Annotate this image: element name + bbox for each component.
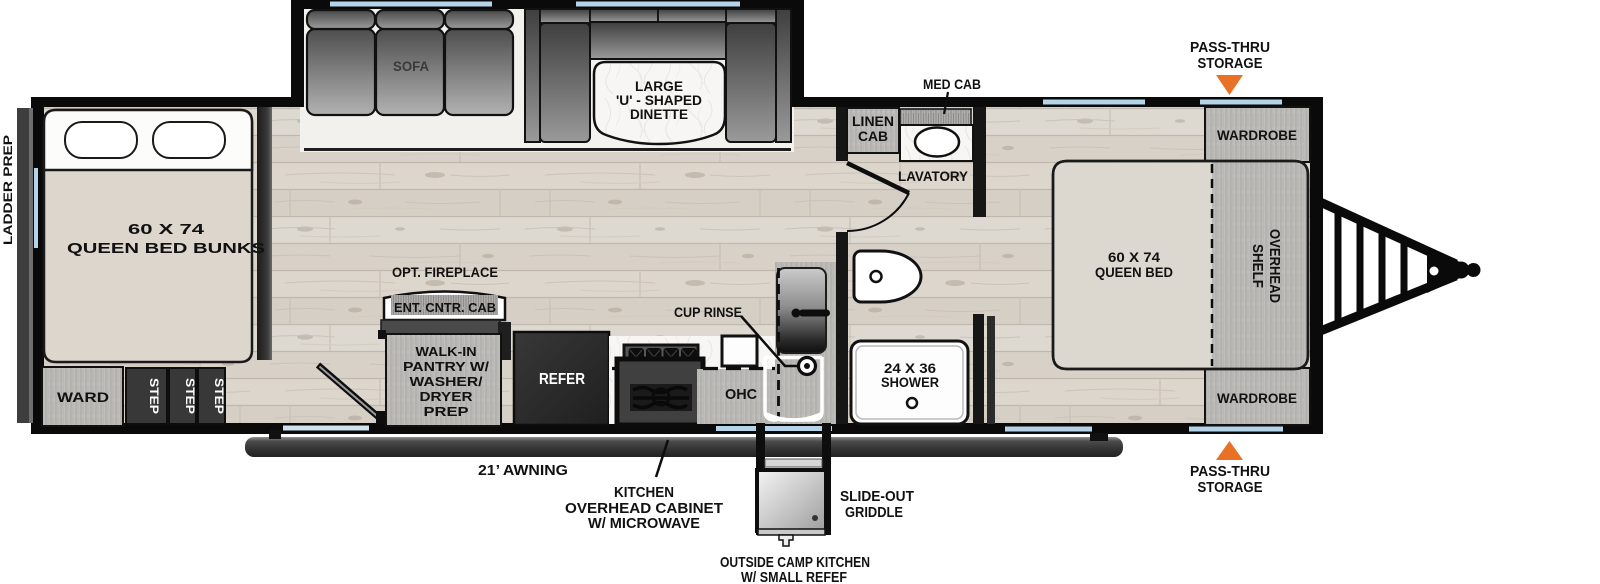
svg-text:60 X 74: 60 X 74 — [128, 221, 205, 238]
svg-text:PASS-THRU: PASS-THRU — [1190, 464, 1270, 480]
svg-text:W/ MICROWAVE: W/ MICROWAVE — [588, 516, 700, 532]
svg-text:OHC: OHC — [725, 386, 757, 403]
svg-text:ENT. CNTR. CAB: ENT. CNTR. CAB — [394, 301, 496, 315]
svg-text:PASS-THRU: PASS-THRU — [1190, 40, 1270, 56]
svg-text:GRIDDLE: GRIDDLE — [845, 504, 903, 521]
svg-text:21’ AWNING: 21’ AWNING — [478, 463, 568, 479]
svg-text:DRYER: DRYER — [420, 389, 474, 404]
svg-text:SHELF: SHELF — [1249, 244, 1266, 288]
svg-text:QUEEN BED: QUEEN BED — [1095, 265, 1173, 280]
svg-text:60 X 74: 60 X 74 — [1108, 250, 1161, 265]
svg-text:SLIDE-OUT: SLIDE-OUT — [840, 488, 914, 505]
svg-text:SOFA: SOFA — [393, 59, 429, 74]
svg-text:DINETTE: DINETTE — [630, 107, 688, 122]
svg-text:LAVATORY: LAVATORY — [898, 169, 968, 184]
svg-text:STEP: STEP — [147, 378, 161, 414]
svg-text:CUP RINSE: CUP RINSE — [674, 305, 742, 320]
svg-text:WARDROBE: WARDROBE — [1217, 391, 1297, 406]
svg-text:OVERHEAD CABINET: OVERHEAD CABINET — [565, 501, 723, 517]
svg-text:SHOWER: SHOWER — [881, 375, 939, 390]
svg-text:STEP: STEP — [212, 378, 226, 414]
svg-text:OVERHEAD: OVERHEAD — [1266, 229, 1283, 303]
svg-text:WARDROBE: WARDROBE — [1217, 128, 1297, 143]
svg-text:W/ SMALL REFEF: W/ SMALL REFEF — [741, 569, 847, 584]
svg-text:REFER: REFER — [539, 371, 585, 388]
svg-text:24 X 36: 24 X 36 — [884, 361, 937, 376]
svg-text:CAB: CAB — [858, 128, 888, 144]
svg-text:WALK-IN: WALK-IN — [416, 344, 477, 359]
svg-text:MED CAB: MED CAB — [923, 77, 981, 92]
svg-text:PREP: PREP — [424, 404, 469, 419]
svg-text:WARD: WARD — [57, 389, 109, 405]
svg-text:LARGE: LARGE — [635, 79, 683, 94]
svg-text:PANTRY W/: PANTRY W/ — [403, 359, 489, 374]
svg-text:KITCHEN: KITCHEN — [614, 485, 674, 501]
svg-text:LADDER PREP: LADDER PREP — [1, 135, 15, 245]
svg-text:WASHER/: WASHER/ — [410, 374, 483, 389]
svg-text:QUEEN BED BUNKS: QUEEN BED BUNKS — [67, 240, 265, 257]
svg-text:OPT. FIREPLACE: OPT. FIREPLACE — [392, 264, 498, 280]
svg-text:'U' - SHAPED: 'U' - SHAPED — [616, 93, 702, 108]
svg-text:STORAGE: STORAGE — [1198, 56, 1263, 72]
svg-text:STEP: STEP — [183, 378, 197, 414]
svg-text:STORAGE: STORAGE — [1198, 480, 1263, 496]
svg-text:LINEN: LINEN — [852, 113, 894, 129]
